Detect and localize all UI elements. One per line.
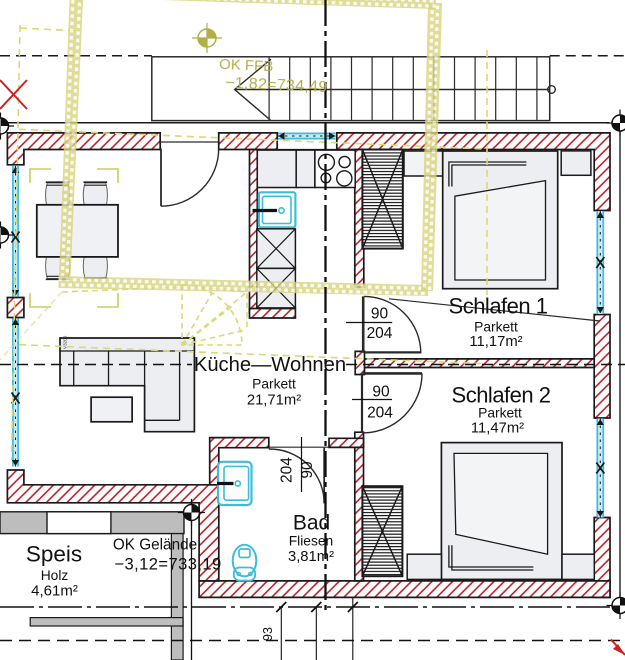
svg-text:93: 93 [261,627,275,641]
svg-text:204: 204 [367,325,393,342]
svg-text:90: 90 [299,461,316,479]
svg-text:204: 204 [279,457,296,483]
svg-text:Holz: Holz [41,568,69,583]
svg-text:11,47m²: 11,47m² [471,421,524,437]
svg-text:V3200: V3200 [63,335,68,349]
svg-text:Speis: Speis [26,542,82,567]
svg-text:11,17m²: 11,17m² [469,334,522,350]
svg-text:Parkett: Parkett [474,320,518,335]
svg-text:204: 204 [367,405,393,422]
svg-text:Parkett: Parkett [252,377,296,392]
svg-text:Bad: Bad [293,512,330,535]
svg-text:Küche—Wohnen: Küche—Wohnen [194,354,346,376]
svg-text:Parkett: Parkett [478,406,522,421]
svg-text:OK FFB: OK FFB [219,56,274,75]
svg-text:21,71m²: 21,71m² [247,393,301,409]
svg-text:3,81m²: 3,81m² [288,549,334,565]
svg-text:90: 90 [372,384,390,401]
svg-text:Fliesen: Fliesen [289,534,333,549]
svg-text:Schlafen 1: Schlafen 1 [449,294,548,319]
svg-text:Schlafen 2: Schlafen 2 [452,383,551,408]
svg-text:−3,12=733,19: −3,12=733,19 [114,555,221,574]
svg-text:4,61m²: 4,61m² [31,583,78,600]
svg-text:90: 90 [371,306,389,323]
svg-text:OK Gelände: OK Gelände [113,537,197,554]
